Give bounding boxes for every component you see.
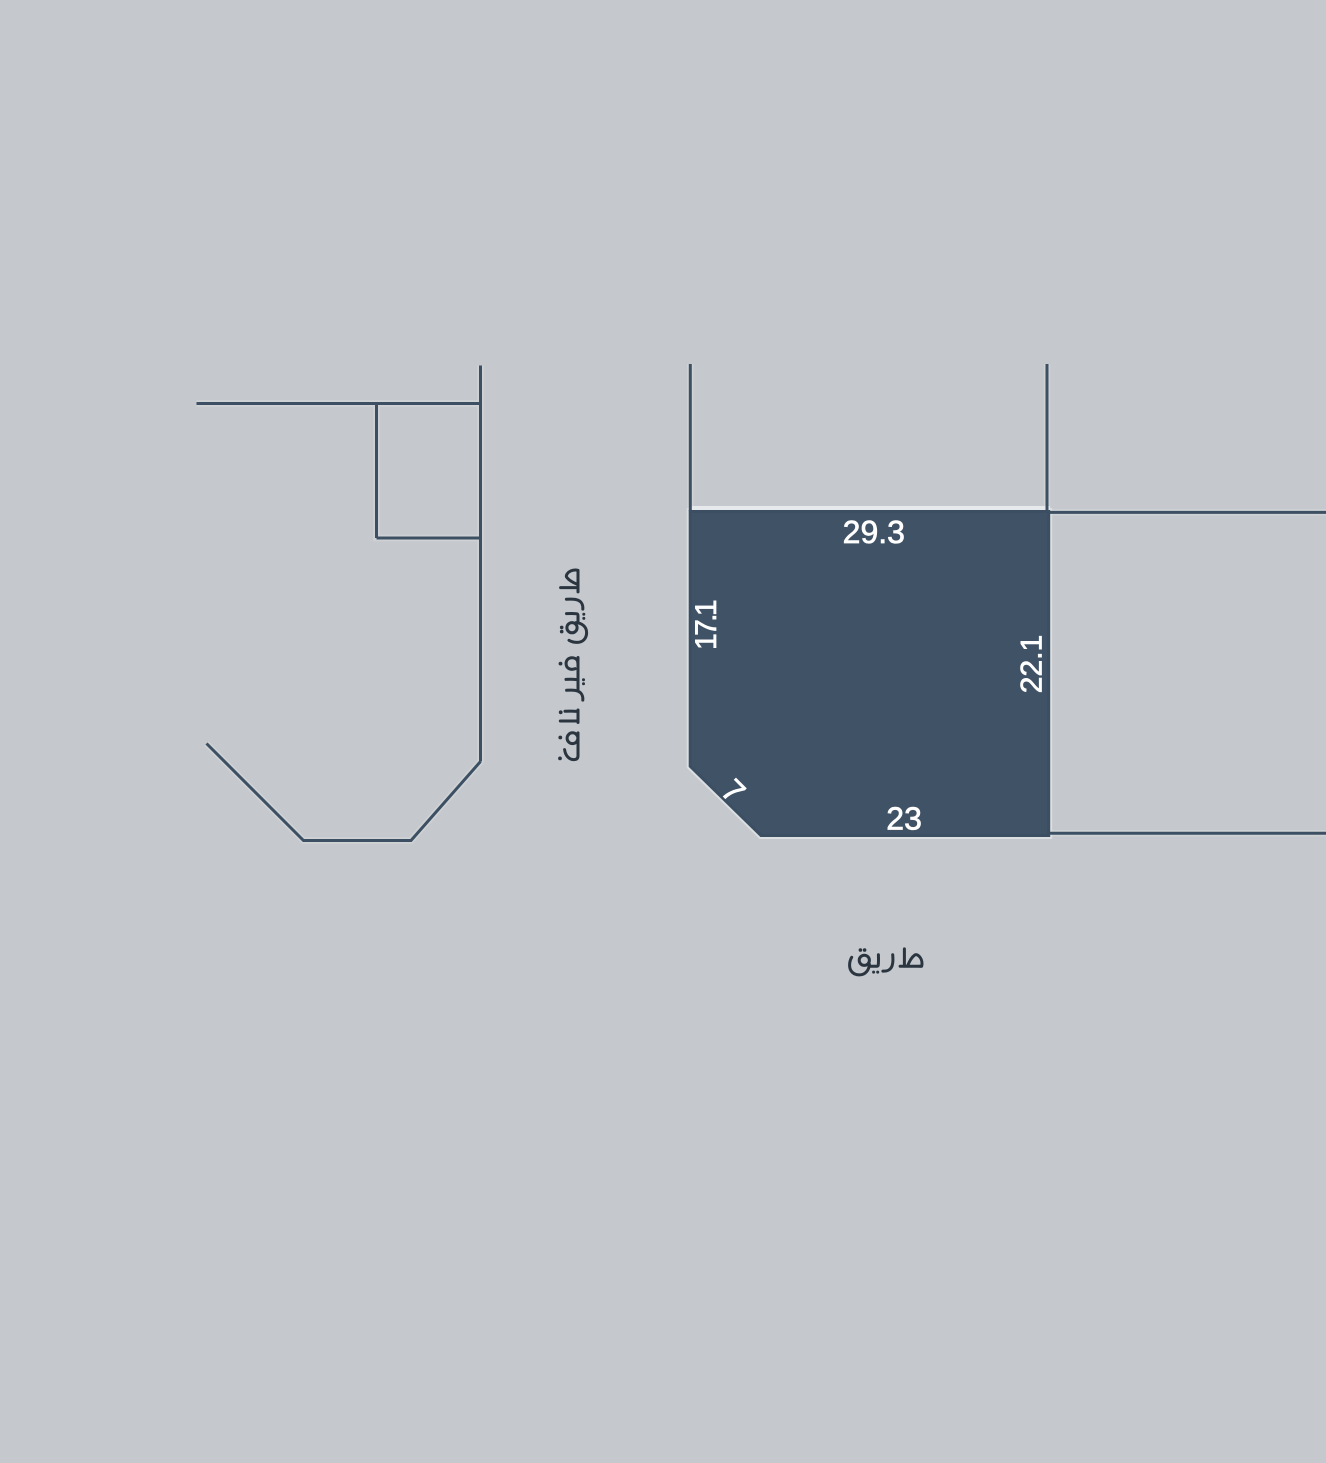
svg-text:29.3: 29.3 bbox=[843, 514, 905, 550]
svg-text:23: 23 bbox=[886, 800, 922, 836]
svg-text:17.1: 17.1 bbox=[690, 600, 723, 650]
svg-text:22.1: 22.1 bbox=[1015, 635, 1048, 693]
